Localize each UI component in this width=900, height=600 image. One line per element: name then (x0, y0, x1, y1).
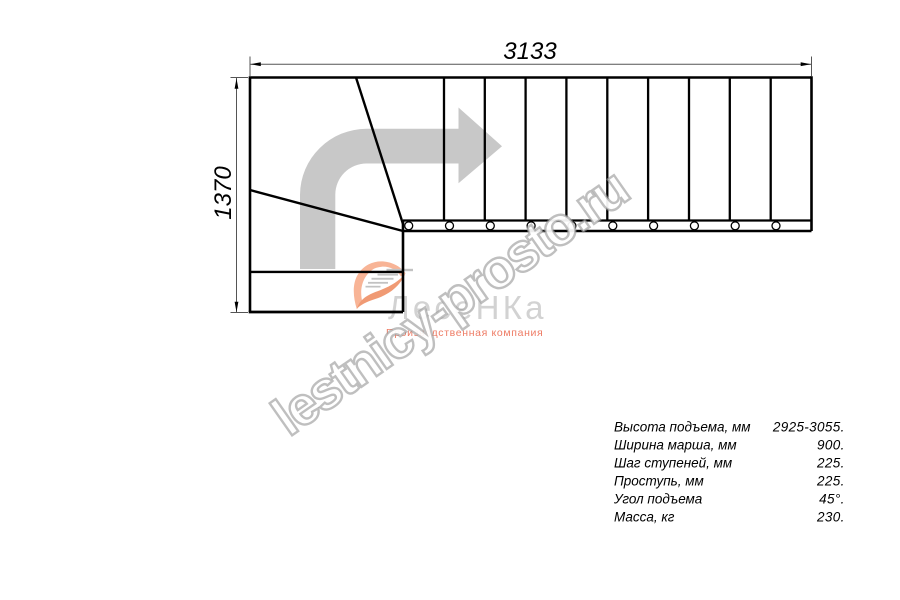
svg-text:225.: 225. (816, 456, 845, 471)
svg-text:900.: 900. (817, 438, 845, 453)
svg-text:45°.: 45°. (819, 492, 845, 507)
svg-text:Проступь, мм: Проступь, мм (614, 474, 704, 489)
svg-text:Шаг ступеней, мм: Шаг ступеней, мм (614, 456, 732, 471)
svg-text:Ширина марша, мм: Ширина марша, мм (614, 438, 737, 453)
svg-text:Высота подъема, мм: Высота подъема, мм (614, 420, 750, 435)
svg-text:Угол подъема: Угол подъема (613, 492, 703, 507)
svg-text:225.: 225. (816, 474, 845, 489)
svg-text:3133: 3133 (503, 38, 557, 65)
svg-text:1370: 1370 (210, 166, 237, 220)
svg-text:230.: 230. (816, 510, 845, 525)
svg-text:2925-3055.: 2925-3055. (772, 420, 845, 435)
svg-text:Масса, кг: Масса, кг (614, 510, 675, 525)
